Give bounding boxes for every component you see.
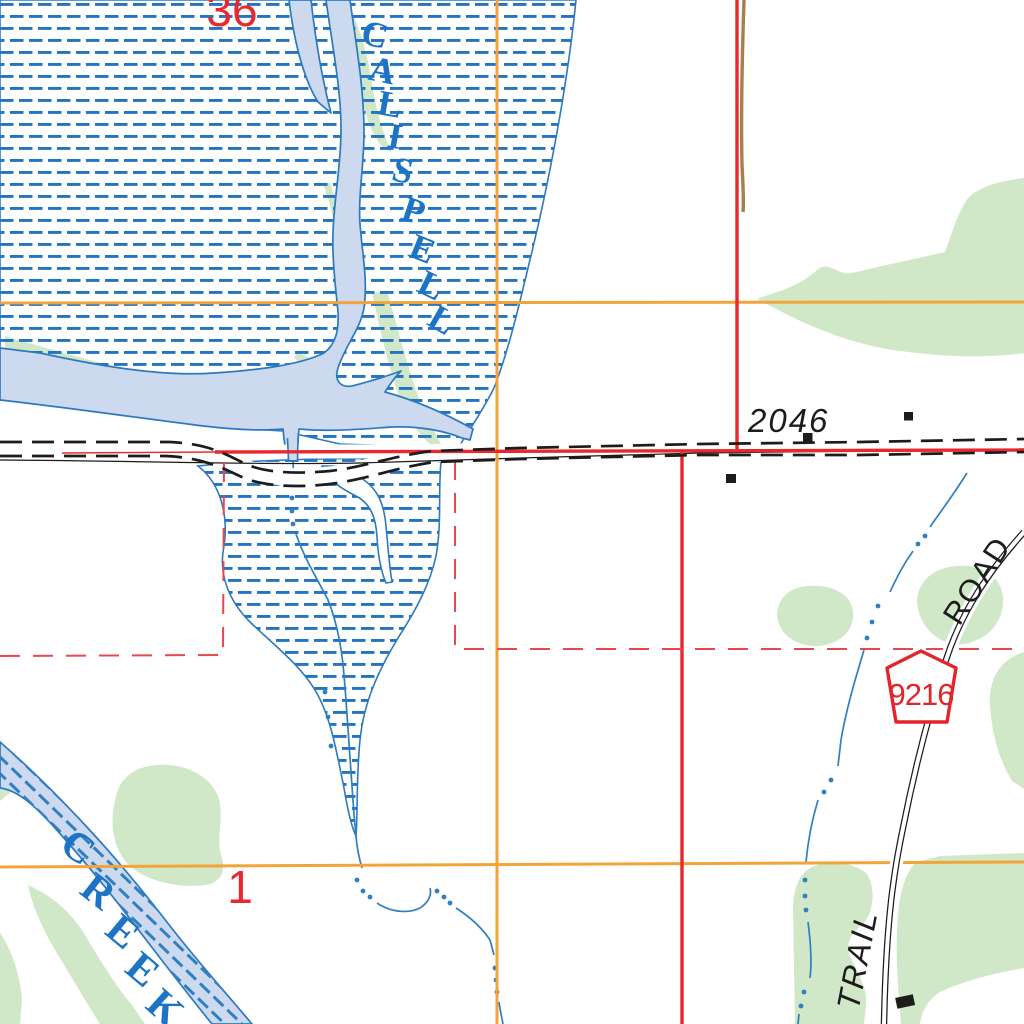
vegetation-left-sliver-b xyxy=(0,933,22,1024)
building-square xyxy=(726,474,736,483)
vegetation-blob-mid xyxy=(777,586,853,646)
section-line-road-thin xyxy=(62,452,215,453)
vegetation-right-edge xyxy=(990,652,1024,789)
road-east-west xyxy=(0,438,1024,477)
grid-line-horizontal-top xyxy=(0,302,1024,303)
pipeline-brown-line xyxy=(742,0,744,212)
map-canvas: 9216 C A L I S P E L L C R E E K 2046 36… xyxy=(0,0,1024,1024)
vegetation-bottom-right-east xyxy=(897,853,1024,1024)
building-square xyxy=(904,412,913,421)
route-shield-number: 9216 xyxy=(889,677,954,712)
spot-elevation-label: 2046 xyxy=(747,402,829,439)
section-number-1: 1 xyxy=(227,861,253,913)
marsh-funnel xyxy=(198,459,441,836)
section-number-36: 36 xyxy=(206,0,257,36)
vegetation-top-right xyxy=(757,178,1024,356)
boundary-dashed-west xyxy=(0,460,224,656)
section-line-road xyxy=(215,450,1024,452)
topo-map-tile: 9216 C A L I S P E L L C R E E K 2046 36… xyxy=(0,0,1024,1024)
route-shield: 9216 xyxy=(887,651,956,722)
